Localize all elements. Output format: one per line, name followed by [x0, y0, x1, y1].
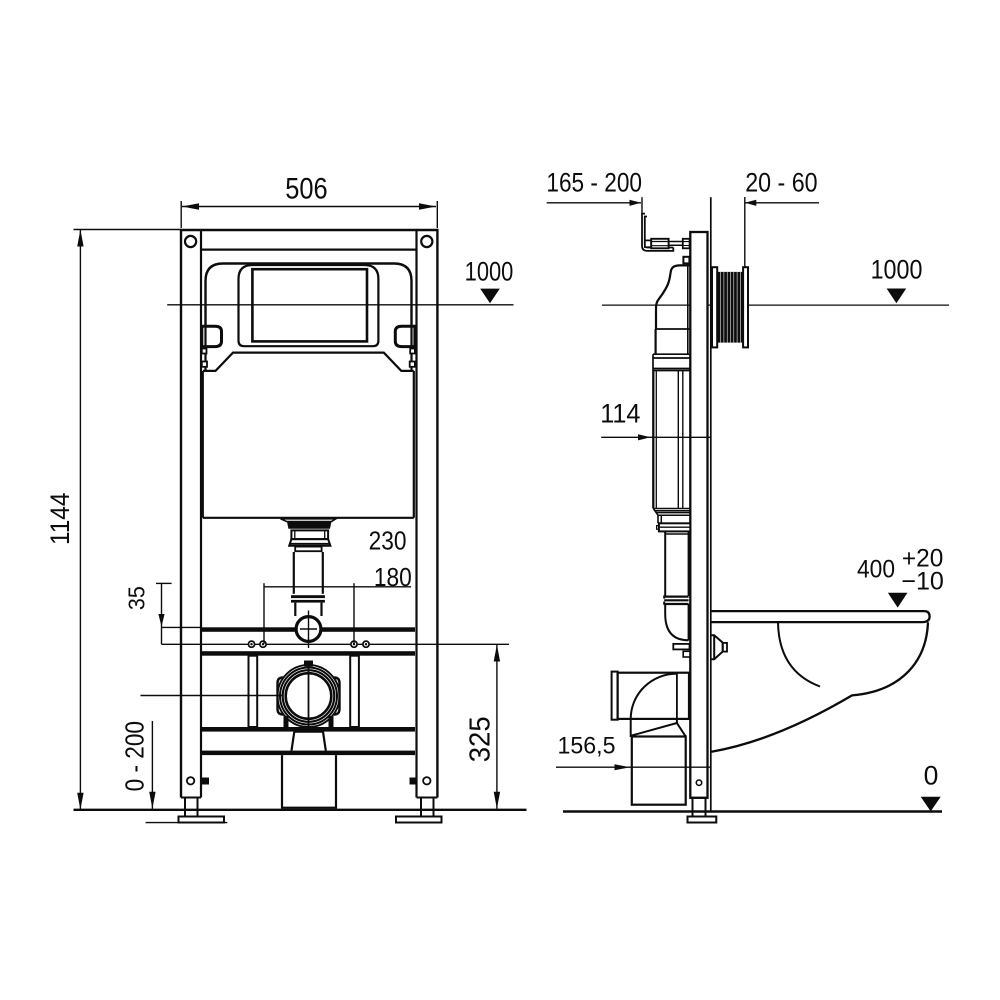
svg-text:156,5: 156,5	[558, 733, 616, 760]
svg-text:325: 325	[465, 716, 497, 762]
svg-text:1000: 1000	[871, 255, 923, 285]
svg-text:0: 0	[924, 761, 939, 791]
svg-text:20 - 60: 20 - 60	[745, 167, 817, 197]
svg-text:1000: 1000	[465, 256, 514, 286]
svg-text:35: 35	[124, 586, 150, 610]
svg-text:1144: 1144	[45, 493, 75, 546]
svg-text:165 - 200: 165 - 200	[546, 167, 642, 197]
svg-text:114: 114	[600, 398, 640, 428]
svg-text:400: 400	[857, 555, 895, 583]
svg-text:506: 506	[285, 173, 327, 206]
svg-text:−10: −10	[901, 567, 944, 595]
svg-text:0 - 200: 0 - 200	[122, 721, 150, 791]
svg-text:230: 230	[369, 525, 407, 555]
